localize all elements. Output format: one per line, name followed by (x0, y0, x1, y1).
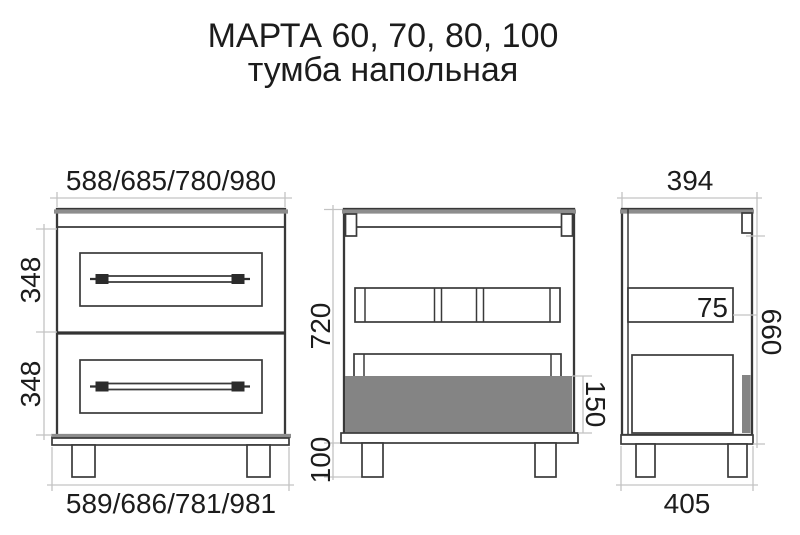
side-leg-front (636, 444, 655, 477)
wall-bracket-right (562, 214, 573, 236)
title-block: МАРТА 60, 70, 80, 100 тумба напольная (208, 17, 559, 89)
side-panel-height-label: 660 (756, 309, 787, 356)
back-drawer-front-height-label: 150 (580, 381, 611, 428)
side-rail-height-label: 75 (697, 292, 728, 323)
front-width-top-label: 588/685/780/980 (66, 165, 276, 196)
side-cabinet (620, 209, 754, 477)
back-dim-drawer-front: 150 (572, 376, 611, 433)
back-leg-left (362, 443, 383, 477)
technical-drawing-page: МАРТА 60, 70, 80, 100 тумба напольная 58… (0, 0, 800, 535)
front-handle-lower (90, 382, 250, 391)
furniture-dimension-drawing: МАРТА 60, 70, 80, 100 тумба напольная 58… (0, 0, 800, 535)
front-plinth (52, 438, 289, 445)
back-rail-lower (354, 354, 561, 378)
front-width-bottom-label: 589/686/781/981 (66, 488, 276, 519)
front-view: 588/685/780/980 (15, 165, 294, 519)
back-rail-upper (355, 288, 560, 322)
back-cabinet (341, 209, 578, 477)
side-wall-bracket (742, 213, 752, 233)
front-upper-drawer-height-label: 348 (15, 257, 46, 304)
drawing-title: МАРТА 60, 70, 80, 100 (208, 17, 559, 55)
back-dim-height: 720 (305, 205, 344, 447)
side-plinth (621, 435, 753, 444)
side-depth-bottom-label: 405 (664, 488, 711, 519)
side-drawer-box (632, 355, 733, 433)
front-cabinet (51, 209, 291, 477)
wall-bracket-left (346, 214, 357, 236)
back-plinth (341, 433, 578, 443)
drawer-box-front-gray (345, 376, 572, 433)
side-view: 394 75 660 405 (616, 165, 787, 519)
back-view: 720 100 (305, 205, 611, 483)
side-depth-top-label: 394 (667, 165, 714, 196)
front-leg-left (72, 445, 95, 477)
front-dim-top: 588/685/780/980 (50, 165, 292, 207)
back-leg-height-label: 100 (305, 437, 336, 484)
front-dim-left: 348 348 (15, 224, 57, 440)
front-lower-drawer-height-label: 348 (15, 361, 46, 408)
side-drawer-front-gray (742, 375, 751, 433)
side-leg-back (728, 444, 747, 477)
front-leg-right (247, 445, 270, 477)
front-handle-upper (90, 275, 250, 284)
drawing-subtitle: тумба напольная (248, 51, 519, 89)
back-body-height-label: 720 (305, 303, 336, 350)
back-leg-right (535, 443, 556, 477)
